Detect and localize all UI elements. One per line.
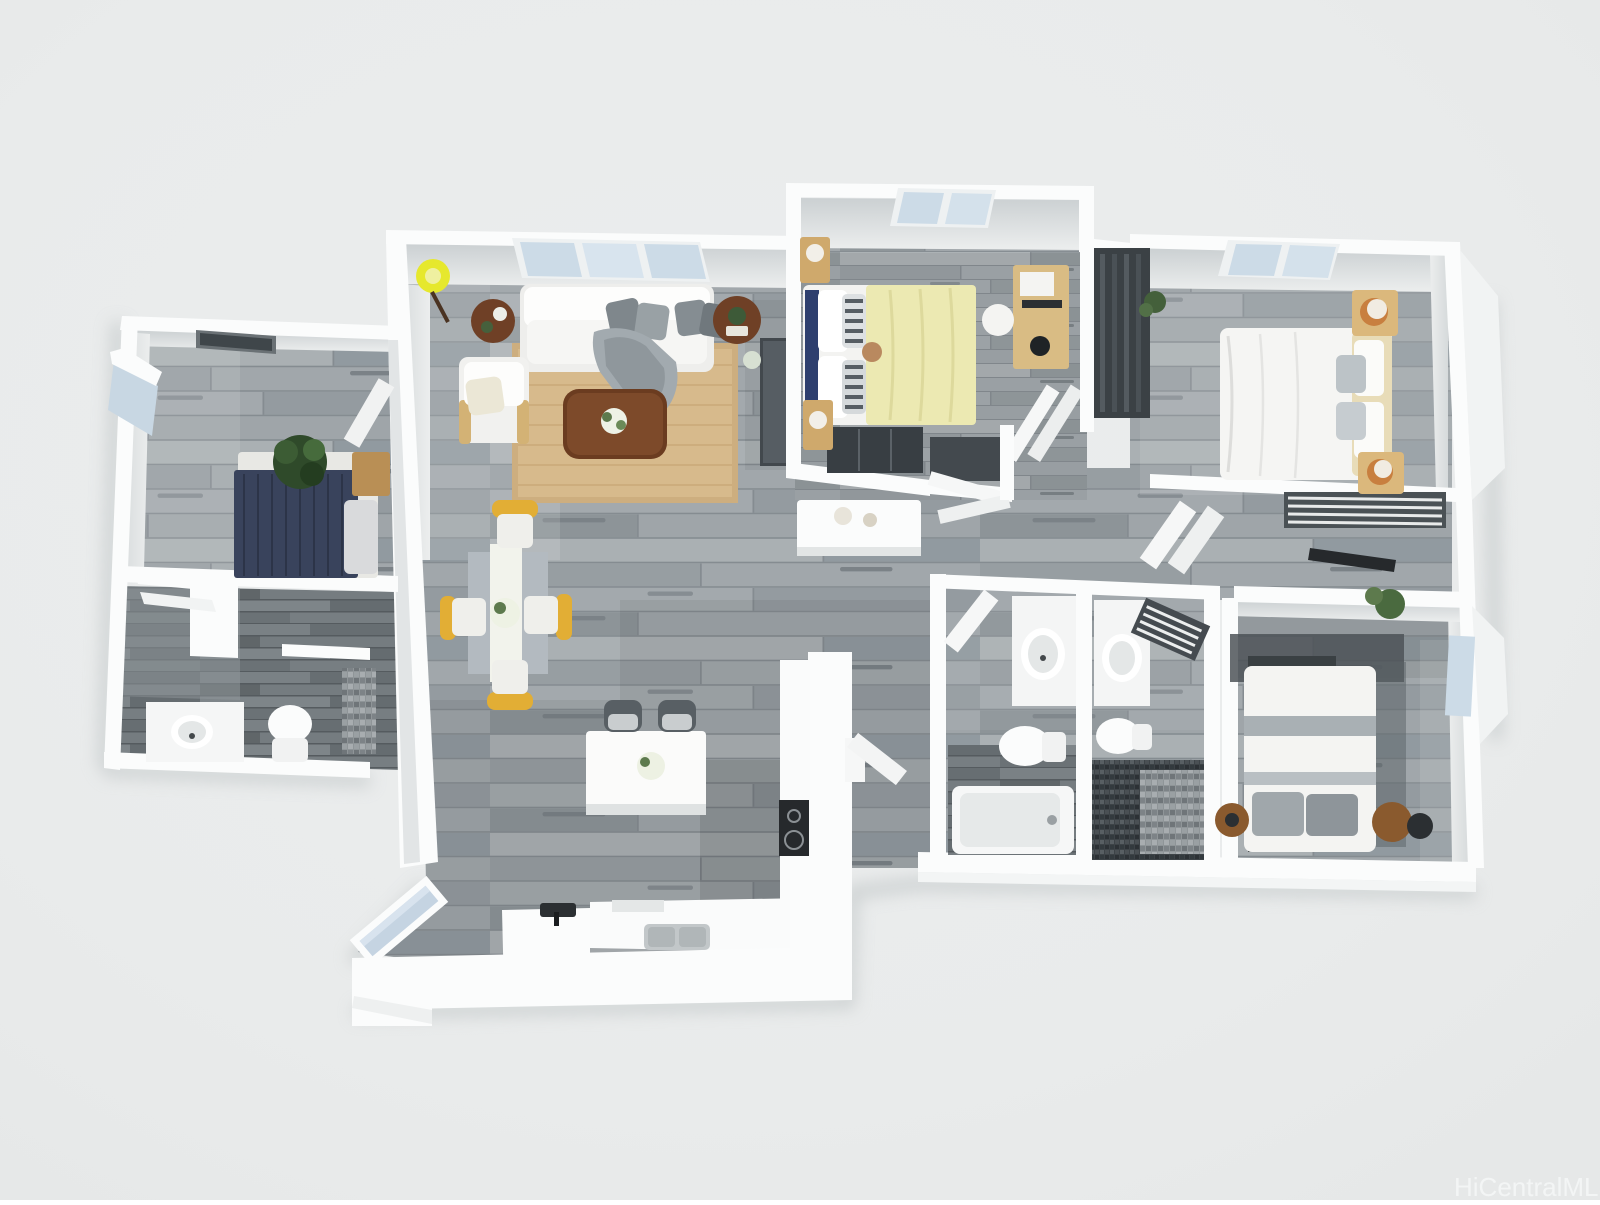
svg-text:HiCentralMLS: HiCentralMLS [1454, 1172, 1600, 1200]
